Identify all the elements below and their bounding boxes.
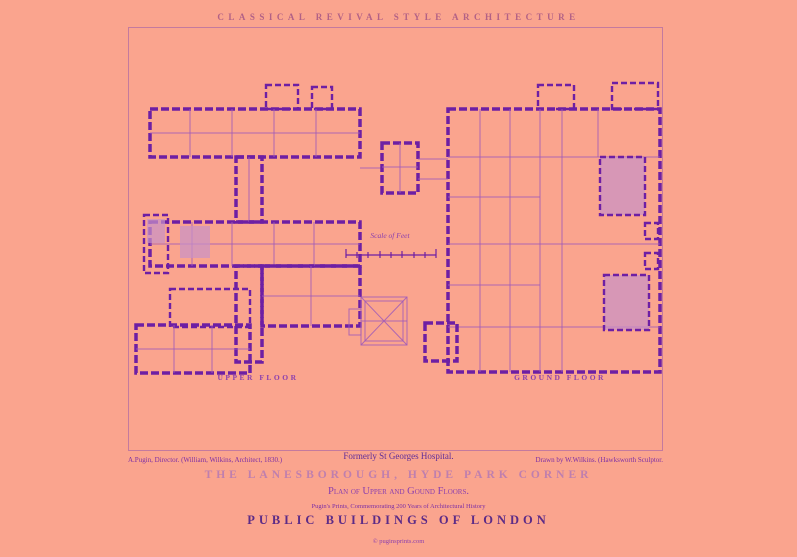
ground-floor-label: GROUND FLOOR xyxy=(500,373,620,382)
print-artboard: CLASSICAL REVIVAL STYLE ARCHITECTURE xyxy=(0,0,797,557)
upper-floor-plan xyxy=(136,85,382,373)
central-annex-plan xyxy=(382,143,448,193)
upper-floor-label: UPPER FLOOR xyxy=(198,373,318,382)
series-note: Pugin's Prints, Commemorating 200 Years … xyxy=(0,503,797,510)
building-title: THE LANESBOROUGH, HYDE PARK CORNER xyxy=(0,469,797,481)
roof-detail xyxy=(349,297,407,345)
series-heading: CLASSICAL REVIVAL STYLE ARCHITECTURE xyxy=(0,12,797,22)
outbuilding-plan xyxy=(425,323,457,361)
series-title: PUBLIC BUILDINGS OF LONDON xyxy=(0,513,797,528)
engraver-credit: Drawn by W.Wilkins. (Hawksworth Sculptor… xyxy=(536,456,663,464)
scale-caption: Scale of Feet xyxy=(340,231,440,240)
ground-floor-plan xyxy=(448,83,660,372)
copyright-note: © puginsprints.com xyxy=(0,538,797,545)
plan-subtitle: Plan of Upper and Gound Floors. xyxy=(0,486,797,497)
formerly-note: Formerly St Georges Hospital. xyxy=(0,451,797,461)
